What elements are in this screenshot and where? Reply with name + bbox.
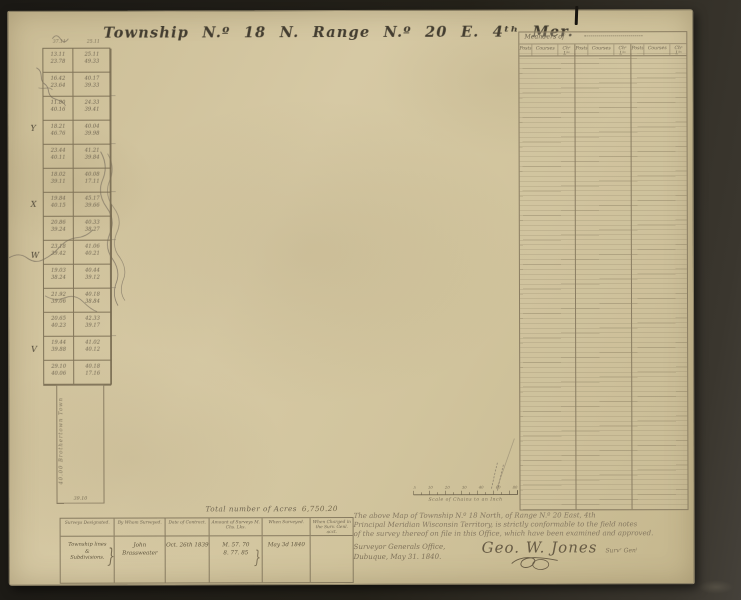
office-name: Surveyor Generals Office, <box>354 541 476 552</box>
scale-caption: Scale of Chains to an Inch <box>412 498 520 503</box>
margin-letter: W <box>31 251 39 260</box>
boundary-distance: 25.11 <box>87 40 100 45</box>
page-title-text: Township N.º 18 N. Range N.º 20 E. 4ᵗʰ M… <box>103 23 574 41</box>
summary-table-header: Surveys Designated. By Whom Surveyed. Da… <box>61 518 353 537</box>
margin-letter: V <box>31 345 37 354</box>
meanders-body <box>519 53 687 509</box>
signature-area: Geo. W. JonesSurvʳ Genˡ <box>482 538 638 562</box>
plat-section-cell: 41.02 40.12 <box>74 337 112 361</box>
when-surveyed-cell: May 3d 1840 <box>262 536 311 582</box>
plat-section-cell: 40.44 39.12 <box>74 265 112 289</box>
summary-col-header: When Charged in the Surv. Genl. acct. <box>310 518 353 535</box>
plat-section-cell: 42.33 39.17 <box>74 313 112 337</box>
summary-col-header: Date of Contract. <box>164 518 209 535</box>
plat-section-cell: 19.84 40.15 <box>44 193 74 217</box>
summary-col-header: Surveys Designated. <box>61 519 114 536</box>
tract-bottom-distance: 39.10 <box>58 497 104 502</box>
meanders-table: Meanders of PostsCoursesChˢ LᵏˢPostsCour… <box>518 31 688 510</box>
meanders-body-column <box>519 53 575 509</box>
meanders-body-column <box>574 53 631 509</box>
surveys-designated-cell: Township lines & Subdivisions.} <box>61 537 115 583</box>
certification-block: The above Map of Township N.º 18 North, … <box>354 511 640 562</box>
plat-section-cell: 25.11 49.33 <box>73 49 111 73</box>
margin-letter: X <box>31 200 37 209</box>
scale-tick-label: 10 <box>428 485 433 490</box>
plat-section-cell: 20.86 39.24 <box>44 217 74 241</box>
plat-section-cell: 19.03 38.24 <box>44 265 74 289</box>
scale-tick-label: 60 <box>496 485 501 490</box>
plat-section-cell: 19.44 39.88 <box>44 337 74 361</box>
meanders-title: Meanders of <box>519 32 686 44</box>
plat-section-cell: 41.06 40.21 <box>74 241 112 265</box>
summary-col-header: By Whom Surveyed. <box>114 518 165 535</box>
scale-bar-ruler <box>412 490 520 497</box>
plat-section-cell: 18.21 46.76 <box>44 121 74 145</box>
tract-side-label: 40.00 Brothertown Town <box>58 386 64 496</box>
surveys-designated-text: Township lines & Subdivisions. <box>68 542 106 561</box>
scale-tick-label: 5 <box>413 485 415 490</box>
summary-col-header: Amount of Surveys M. Chs. Lks. <box>209 518 262 535</box>
plat-section-cell: 13.11 23.78 <box>43 49 73 73</box>
total-acres-label: Total number of Acres <box>206 504 297 513</box>
amount-text: M. 57. 70 8. 77. 85 <box>222 542 249 556</box>
scale-bar: 5102030406080 Scale of Chains to an Inch <box>411 485 519 503</box>
plat-top-distances: 37.1125.11 <box>42 40 110 45</box>
plat-section-cell: 24.33 39.41 <box>73 97 111 121</box>
when-charged-cell <box>310 536 353 582</box>
plat-section-cell: 20.65 40.23 <box>44 313 74 337</box>
corner-smudge <box>698 580 734 594</box>
plat-section-cell: 40.17 39.33 <box>73 73 111 97</box>
amount-cell: M. 57. 70 8. 77. 85} <box>209 536 262 582</box>
margin-letter: Y <box>31 124 36 133</box>
plat-section-cell: 41.21 39.84 <box>74 145 112 169</box>
contract-date-cell: Oct. 26th 1839 <box>165 536 210 582</box>
scale-tick-label: 30 <box>462 485 467 490</box>
plat-section-cell: 40.18 17.16 <box>74 361 112 385</box>
scale-tick-label: 20 <box>445 485 450 490</box>
shore-meander-line <box>497 439 514 487</box>
plat-section-cell: 23.18 39.42 <box>44 241 74 265</box>
scale-tick-label: 40 <box>479 485 484 490</box>
plat-section-cell: 40.18 38.84 <box>74 289 112 313</box>
plat-section-cell: 40.33 38.27 <box>74 217 112 241</box>
scale-tick-label: 80 <box>513 485 518 490</box>
plat-document: Township N.º 18 N. Range N.º 20 E. 4ᵗʰ M… <box>7 9 695 586</box>
total-acres-value: 6,750.20 <box>302 504 338 513</box>
plat-section-cell: 29.10 40.06 <box>44 361 74 385</box>
plat-section-cell: 11.80 40.16 <box>43 97 73 121</box>
plat-section-cell: 21.92 39.06 <box>44 289 74 313</box>
amount-brace: } <box>254 544 261 571</box>
summary-table-row: Township lines & Subdivisions.} John Bra… <box>61 536 353 583</box>
lower-tract-outline: 40.00 Brothertown Town 39.10 <box>56 385 104 504</box>
plat-section-cell: 18.02 39.11 <box>44 169 74 193</box>
signature-flourish <box>510 553 562 573</box>
office-place-date: Dubuque, May 31. 1840. <box>354 552 476 563</box>
certification-signature-row: Surveyor Generals Office, Dubuque, May 3… <box>354 541 640 563</box>
plat-grid: 13.11 23.7825.11 49.3316.42 23.6440.17 3… <box>42 48 111 386</box>
plat-section-cell: 16.42 23.64 <box>43 73 73 97</box>
office-lines: Surveyor Generals Office, Dubuque, May 3… <box>354 541 476 562</box>
summary-table: Surveys Designated. By Whom Surveyed. Da… <box>60 517 354 584</box>
summary-col-header: When Surveyed. <box>262 518 311 535</box>
signature-title: Survʳ Genˡ <box>605 547 637 554</box>
plat-section-cell: 45.17 39.66 <box>74 193 112 217</box>
township-plat: 37.1125.11 13.11 23.7825.11 49.3316.42 2… <box>42 48 111 386</box>
plat-section-cell: 23.44 40.11 <box>44 145 74 169</box>
plat-section-cell: 40.08 17.11 <box>74 169 112 193</box>
meanders-body-column <box>630 53 687 509</box>
plat-section-cell: 40.04 39.98 <box>74 121 112 145</box>
boundary-distance: 37.11 <box>53 40 66 45</box>
total-acres-line: Total number of Acres6,750.20 <box>206 504 338 513</box>
surveyor-name-cell: John Brassweater <box>114 536 165 582</box>
